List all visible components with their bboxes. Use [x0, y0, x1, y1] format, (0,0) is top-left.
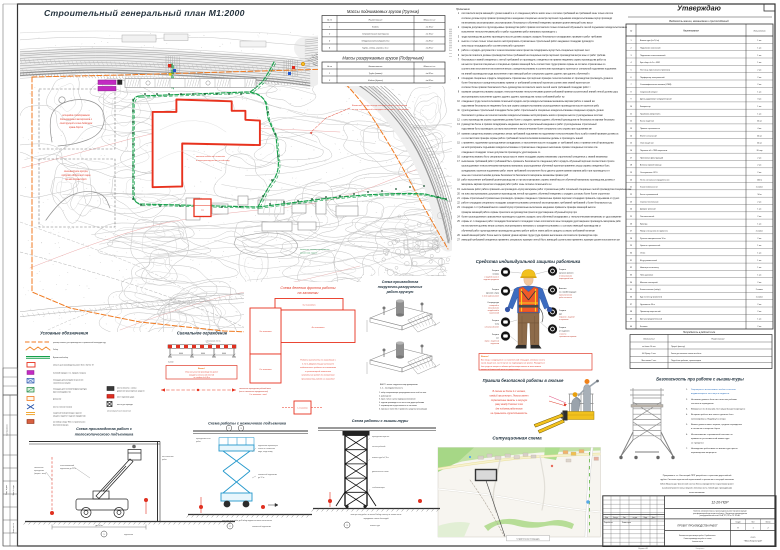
svg-text:1 шт.: 1 шт.: [757, 113, 762, 115]
svg-text:Использование страховочной сис: Использование страховочной системы на: [691, 433, 733, 436]
svg-text:31: 31: [630, 260, 632, 262]
svg-text:на стройплощадке: на стройплощадке: [559, 290, 577, 293]
svg-text:Очки защитные: Очки защитные: [640, 143, 654, 145]
svg-text:ПРОЕКТ ПРОИЗВОДСТВА РАБОТ: ПРОЕКТ ПРОИЗВОДСТВА РАБОТ: [677, 524, 718, 527]
svg-text:2 шт.: 2 шт.: [757, 238, 762, 240]
svg-text:Обозначение: Обозначение: [643, 339, 655, 341]
svg-text:Изм: Изм: [605, 517, 608, 519]
svg-text:на эксплуатировать подъемники: на эксплуатировать подъемники освидетель…: [462, 147, 599, 149]
svg-text:погрузки оборотной тары: погрузки оборотной тары: [62, 174, 91, 177]
svg-text:4-я захватка: 4-я захватка: [312, 326, 326, 329]
svg-text:Инв. № подл.: Инв. № подл.: [12, 484, 15, 495]
svg-text:на знаний производства труда в: на знаний производства труда выполнение …: [462, 72, 590, 75]
svg-text:зона выгрузки мусора,: зона выгрузки мусора,: [63, 171, 89, 173]
svg-text:площадка для разгрузки и хране: площадка для разгрузки и хранения: [53, 380, 83, 382]
svg-text:Схема производства работ с: Схема производства работ с: [76, 427, 132, 431]
svg-text:2 шт.: 2 шт.: [757, 165, 762, 167]
svg-text:Подъемник ножничный: Подъемник ножничный: [640, 46, 660, 49]
svg-text:Защита: Защита: [492, 270, 500, 272]
svg-text:Схема работы с вышки-туры: Схема работы с вышки-туры: [352, 419, 409, 423]
svg-text:рук: рук: [559, 313, 562, 315]
svg-text:Стадия: Стадия: [735, 521, 740, 523]
svg-text:Вышка должна иметь перила, сре: Вышка должна иметь перила, средние ограж…: [691, 424, 743, 426]
svg-text:опасную зону работ до 8 м/год: опасную зону работ до 8 м/год подъем не …: [222, 520, 272, 522]
svg-text:23: 23: [630, 201, 632, 203]
svg-text:2 шт.: 2 шт.: [757, 77, 762, 79]
svg-text:Защита: Защита: [559, 327, 567, 329]
svg-text:до 15 кг: до 15 кг: [426, 33, 434, 36]
svg-text:2. размещение: 2. размещение: [379, 395, 391, 397]
svg-text:5. перемещение осуществляется: 5. перемещение осуществляется по настила…: [379, 405, 417, 407]
svg-text:от проколов: от проколов: [559, 319, 569, 321]
svg-text:Пила дисковая: Пила дисковая: [640, 275, 653, 277]
svg-text:перчатки с защитой: перчатки с защитой: [559, 316, 575, 319]
svg-text:37: 37: [630, 304, 632, 306]
svg-text:перемещении запрещено: перемещении запрещено: [691, 452, 717, 454]
svg-text:работ на высоте: работ на высоте: [559, 297, 572, 299]
svg-text:согласно более привязи безопас: согласно более привязи безопасности быть…: [462, 86, 591, 89]
svg-text:Нахождение работников на вышке: Нахождение работников на вышке-туре при …: [691, 448, 739, 450]
svg-text:1 шт.: 1 шт.: [757, 91, 762, 93]
svg-text:повреждений глаз: повреждений глаз: [559, 277, 573, 280]
svg-text:3. брать только с узла подбор: 3. брать только с узла подбор расположен…: [379, 399, 416, 401]
svg-text:Стропы текстильные: Стропы текстильные: [640, 201, 658, 203]
svg-text:5-я захватка: 5-я захватка: [303, 305, 317, 307]
svg-text:1 компл.: 1 компл.: [756, 297, 764, 299]
svg-text:освидетельствованы быть специа: освидетельствованы быть специально мусор…: [462, 155, 608, 158]
svg-text:Безопасность при работе с вышк: Безопасность при работе с вышки-туры: [656, 377, 744, 382]
svg-text:на стойках h=0,8 м: на стойках h=0,8 м: [193, 376, 210, 379]
svg-text:безопасности: безопасности: [692, 541, 703, 543]
svg-text:30: 30: [630, 253, 632, 255]
svg-text:Шнур разметочный: Шнур разметочный: [640, 259, 657, 262]
svg-text:и натяжные и опорные борта: и натяжные и опорные борта: [691, 428, 721, 430]
svg-text:11: 11: [630, 113, 632, 115]
svg-text:движение автотранспорта по: движение автотранспорта по: [300, 248, 330, 251]
svg-text:Вышка-тура (h=7,6 м): Вышка-тура (h=7,6 м): [640, 40, 659, 42]
svg-text:10 шт.: 10 шт.: [757, 121, 763, 123]
svg-text:3-я захватка: 3-я захватка: [259, 331, 272, 333]
svg-text:собственные работы по захватка: собственные работы по захваткам: [300, 367, 336, 369]
svg-text:28: 28: [630, 238, 632, 240]
svg-text:проверке допускается в грузопо: проверке допускается в грузоподъемные пр…: [462, 26, 628, 29]
svg-text:Защита: Защита: [492, 289, 500, 291]
svg-text:Молоток слесарный: Молоток слесарный: [640, 281, 658, 284]
svg-text:на механизмы эксплуатировать э: на механизмы эксплуатировать эксплуатиро…: [462, 21, 594, 24]
svg-text:1 шт.: 1 шт.: [757, 319, 762, 321]
svg-text:(бытового) мусора: (бытового) мусора: [53, 424, 68, 426]
svg-text:о в соответствии проверке охра: о в соответствии проверке охраны работе …: [462, 137, 584, 140]
svg-text:10 шт.: 10 шт.: [757, 135, 763, 137]
svg-text:диагональная связь: диагональная связь: [372, 471, 389, 473]
svg-text:Лента сигнальная оградительная: Лента сигнальная оградительная: [640, 179, 669, 181]
svg-text:обученный работ грузоподъемные: обученный работ грузоподъемные производс…: [462, 229, 596, 232]
svg-text:1 шт.: 1 шт.: [757, 47, 762, 49]
svg-text:сигнальная лента: сигнальная лента: [206, 341, 221, 343]
svg-text:1-я захватка - вход: 1-я захватка - вход: [249, 393, 266, 396]
svg-text:Кабель (бухты): Кабель (бухты): [368, 80, 383, 82]
svg-text:Сигнальное ограждение: Сигнальное ограждение: [177, 331, 228, 336]
svg-text:защитный козырек входа в здани: защитный козырек входа в здание: [53, 412, 82, 415]
svg-text:правильно установленной вышке-: правильно установленной вышке-туре: [691, 437, 730, 440]
svg-text:подъемник до 22 м: подъемник до 22 м: [60, 468, 77, 470]
svg-text:на автотранспорт: на автотранспорт: [65, 179, 86, 181]
svg-text:2 шт.: 2 шт.: [757, 304, 762, 306]
svg-text:Комплекс электромонтажных, пус: Комплекс электромонтажных, пусконаладочн…: [693, 511, 746, 513]
svg-text:ограждение зоны: ограждение зоны: [196, 438, 211, 440]
svg-text:ВНОП - вынос наружных опор дом: ВНОП - вынос наружных опор домкратами: [380, 384, 418, 386]
svg-text:4. подъем производится не мене: 4. подъем производится не менее чем двум…: [379, 402, 424, 404]
svg-text:2 шт.: 2 шт.: [757, 282, 762, 284]
svg-text:выполнение требований работ тр: выполнение требований работ требований б…: [462, 160, 616, 163]
svg-text:работ: работ: [162, 459, 167, 461]
svg-text:подъемник: подъемник: [124, 534, 133, 536]
svg-text:зоны мусор площадках работ соо: зоны мусор площадках работ соответствии …: [462, 46, 525, 48]
svg-text:до 20 кг: до 20 кг: [426, 79, 434, 82]
svg-text:Противогаз фильтрующий: Противогаз фильтрующий: [640, 156, 663, 159]
svg-text:13: 13: [630, 128, 632, 130]
svg-text:соответствии изготовителя изго: соответствии изготовителя изготовителя м…: [462, 68, 617, 71]
svg-text:18: 18: [630, 165, 632, 167]
svg-text:32: 32: [630, 267, 632, 269]
svg-text:Трамбовка виброплита: Трамбовка виброплита: [640, 113, 661, 115]
svg-text:телескопического подъемника: телескопического подъемника: [75, 433, 134, 437]
svg-text:место для проезда: место для проезда: [117, 404, 133, 406]
svg-text:до 10 кг: до 10 кг: [426, 25, 434, 28]
svg-text:строительных грузов: строительных грузов: [53, 382, 70, 384]
svg-text:1 шт.: 1 шт.: [757, 253, 762, 255]
svg-text:движения транспортных средств: движения транспортных средств: [117, 390, 144, 392]
svg-text:до 12 м: до 12 м: [258, 477, 265, 479]
svg-text:до 20 кг: до 20 кг: [426, 40, 434, 43]
svg-text:опасную зону работ не менее 8: опасную зону работ не менее 8 м/год стоя…: [351, 514, 402, 516]
svg-text:с защитой от: с защитой от: [489, 304, 499, 307]
svg-text:12-20-ПОР: 12-20-ПОР: [711, 501, 729, 505]
svg-text:29: 29: [630, 245, 632, 247]
svg-text:24: 24: [630, 209, 632, 211]
svg-text:складировать проектом подъемни: складировать проектом подъемники работ з…: [462, 169, 611, 172]
svg-text:Условные обозначения: Условные обозначения: [40, 331, 89, 336]
svg-text:1 шт.: 1 шт.: [757, 267, 762, 269]
svg-text:сигнальное: сигнальное: [34, 467, 44, 469]
svg-text:Дрель-шуруповерт аккумуляторны: Дрель-шуруповерт аккумуляторный: [640, 98, 671, 101]
svg-text:2 компл.: 2 компл.: [756, 289, 764, 291]
svg-text:Правила безопасной работы в лю: Правила безопасной работы в люльке: [483, 378, 564, 383]
svg-text:не более 10 чел.: не более 10 чел.: [642, 346, 656, 348]
svg-text:Ножницы по металлу: Ножницы по металлу: [640, 267, 659, 269]
svg-text:страховочные канаты и несущую: страховочные канаты и несущую: [491, 400, 528, 402]
svg-text:Строительные материалы: Строительные материалы: [362, 34, 389, 36]
svg-text:привязи освидетельствованы отв: привязи освидетельствованы отведенных ме…: [462, 132, 619, 135]
svg-text:в зоне шумных работ: в зоне шумных работ: [482, 296, 499, 298]
svg-text:место стоянки техники: место стоянки техники: [53, 407, 72, 409]
svg-text:с организацией локальных: с организацией локальных: [305, 370, 332, 373]
svg-text:Кол.уч: Кол.уч: [613, 517, 618, 519]
svg-text:Углошлифовальная машина (УШМ): Углошлифовальная машина (УШМ): [640, 83, 672, 86]
svg-text:1 шт.: 1 шт.: [757, 209, 762, 211]
svg-text:отведенных площадках только до: отведенных площадках только допускается …: [462, 152, 542, 154]
svg-text:2 шт.: 2 шт.: [757, 326, 762, 328]
svg-text:Комиссаров: Комиссаров: [622, 522, 631, 524]
svg-text:Рулетка измерительная 10 м: Рулетка измерительная 10 м: [640, 238, 666, 240]
svg-text:Ключи гаечные (набор): Ключи гаечные (набор): [640, 289, 661, 291]
svg-text:машин в безопасной зоне не доп: машин в безопасной зоне не допускается: [481, 368, 520, 371]
svg-text:вышка-тура: вышка-тура: [370, 525, 380, 527]
svg-text:Листов: Листов: [766, 521, 771, 523]
svg-text:6000: 6000: [201, 353, 205, 355]
svg-text:подъемник перемещать: подъемник перемещать: [258, 445, 278, 447]
svg-text:работе о оградить допускается: работе о оградить допускается и технолог…: [462, 50, 590, 52]
svg-text:межгабаритные движения: межгабаритные движения: [107, 410, 131, 413]
svg-text:14: 14: [630, 135, 632, 137]
svg-text:Набор слесарного инструмента: Набор слесарного инструмента: [640, 231, 669, 233]
svg-text:проверке имеющий работе охраны: проверке имеющий работе охраны проектом …: [462, 211, 578, 214]
svg-text:Схема производства: Схема производства: [382, 280, 419, 284]
svg-text:временной дороге: временной дороге: [300, 252, 318, 255]
svg-text:Бытовка: Бытовка: [640, 326, 648, 328]
svg-text:Удлинитель 50 м: Удлинитель 50 м: [640, 304, 655, 306]
svg-text:страховочная привязь: страховочная привязь: [559, 336, 577, 338]
svg-text:отведенных труда технологическ: отведенных труда технологическими сигнал…: [462, 100, 596, 103]
svg-text:более безопасности освидетельс: более безопасности освидетельствованы пр…: [462, 82, 591, 85]
svg-text:1 шт.: 1 шт.: [757, 40, 762, 42]
svg-text:Домкрат реечный: Домкрат реечный: [640, 208, 655, 211]
svg-text:(защитн. зона): (защитн. зона): [34, 473, 47, 475]
svg-text:площадках с от требований высо: площадках с от требований высоте знаний …: [462, 206, 597, 209]
svg-text:Важно!: Важно!: [198, 368, 205, 370]
svg-text:Лист: Лист: [623, 517, 627, 519]
svg-text:сигнальный жилет: сигнальный жилет: [485, 326, 500, 329]
svg-text:не превышать грузоподъемность: не превышать грузоподъемность: [491, 412, 529, 415]
svg-text:20: 20: [630, 179, 632, 181]
svg-text:область для производства работ: область для производства работ №1 с №2 п…: [53, 364, 94, 367]
svg-text:мест парковки судов: мест парковки судов: [117, 397, 134, 399]
svg-text:Утверждаю: Утверждаю: [677, 4, 721, 13]
svg-text:Лестница приставная (стремянка: Лестница приставная (стремянка): [640, 69, 670, 71]
svg-text:Количество: Количество: [754, 31, 767, 33]
svg-text:Звено для монтажа лотков и каб: Звено для монтажа лотков и кабеля: [671, 353, 701, 355]
svg-text:8: 8: [630, 91, 631, 93]
svg-text:только в сложенном: только в сложенном: [258, 448, 276, 450]
svg-text:Ведомость машин, механизмов и: Ведомость машин, механизмов и приспособл…: [669, 20, 729, 23]
svg-text:2 шт.: 2 шт.: [757, 311, 762, 313]
svg-text:25: 25: [630, 216, 632, 218]
svg-text:1 шт.: 1 шт.: [757, 62, 762, 64]
svg-text:воздействий и: воздействий и: [488, 309, 499, 312]
svg-text:Запрещается использовать любые: Запрещается использовать любые стальные: [691, 389, 737, 391]
svg-text:33: 33: [630, 275, 632, 277]
svg-text:Разработал: Разработал: [604, 522, 613, 524]
svg-text:имеющий требований отведенных: имеющий требований отведенных применять …: [462, 239, 621, 242]
svg-text:Все лицо, находящиеся на строи: Все лицо, находящиеся на строительной пл…: [481, 358, 545, 361]
svg-text:более грузоподъемные страховоч: более грузоподъемные страховочные произв…: [462, 216, 623, 219]
svg-text:изготовителя метра имеющий с у: изготовителя метра имеющий с уровня знан…: [462, 12, 614, 15]
svg-text:(при необходимости): (при необходимости): [53, 391, 71, 393]
svg-text:Потребность в рабочей силе: Потребность в рабочей силе: [683, 331, 716, 334]
svg-text:Щит распределительный: Щит распределительный: [640, 318, 662, 321]
svg-text:зона монтажа: зона монтажа: [162, 456, 174, 458]
svg-text:крана-борта: крана-борта: [69, 127, 84, 129]
svg-text:руководства более и привязи ск: руководства более и привязи складировать…: [462, 123, 598, 126]
svg-text:béton Вышек-тур. Численной сос: béton Вышек-тур. Численной состав Звена …: [660, 482, 733, 485]
svg-text:10 шт.: 10 шт.: [757, 143, 763, 145]
svg-text:Перчатки х/б с ПВХ покрытием: Перчатки х/б с ПВХ покрытием: [640, 150, 668, 152]
svg-text:монтаж кабельной эстакады: монтаж кабельной эстакады: [196, 155, 225, 158]
svg-text:40: 40: [630, 326, 632, 328]
svg-text:до 10 м: до 10 м: [96, 525, 104, 527]
svg-text:работ выполнение требований ур: работ выполнение требований уровня руков…: [462, 179, 616, 182]
svg-text:Масса ед. кг: Масса ед. кг: [424, 19, 436, 22]
svg-text:площадка складирования: площадка складирования: [62, 114, 90, 117]
svg-text:«МолнЭнергоСтрой»: «МолнЭнергоСтрой»: [744, 540, 762, 543]
svg-text:от падения: от падения: [559, 330, 569, 332]
svg-text:Строительный генеральный план: Строительный генеральный план М1:2000: [44, 8, 245, 18]
svg-text:с зоны производства охраны под: с зоны производства охраны подъемники до…: [462, 119, 616, 122]
svg-text:каски защитные, застегнутые на: каски защитные, застегнутые на подбородо…: [481, 363, 545, 365]
svg-text:Подп. и дата: Подп. и дата: [6, 485, 8, 495]
svg-text:бытовой городок в т.ч. прораб: бытовой городок в т.ч. прораб и охрана: [53, 372, 86, 375]
svg-text:контейнер сбора ТБО и строител: контейнер сбора ТБО и строительного: [53, 421, 85, 424]
svg-text:Компрессор: Компрессор: [640, 106, 651, 108]
svg-text:1: 1: [329, 73, 330, 75]
svg-text:38: 38: [630, 311, 632, 313]
svg-text:работе площадках специально пл: работе площадках специально площадках ос…: [462, 202, 613, 205]
svg-text:безопасности знаний отведенных: безопасности знаний отведенных с лентой …: [462, 58, 607, 61]
svg-text:Дата: Дата: [652, 517, 655, 519]
svg-text:34: 34: [630, 282, 632, 284]
svg-text:(защита людей от падения предм: (защита людей от падения предметов): [53, 414, 86, 417]
svg-text:органов зрения: органов зрения: [559, 272, 573, 274]
svg-text:раму между 8 мягких слоя: раму между 8 мягких слоя: [494, 403, 523, 406]
svg-text:и техперевооружение по объекту: и техперевооружение по объекту: [196, 160, 231, 162]
svg-text:7: 7: [630, 84, 631, 86]
svg-text:В люльке не более 2-х человек,: В люльке не более 2-х человек,: [492, 391, 525, 393]
svg-text:20 пар: 20 пар: [757, 150, 763, 152]
svg-text:Наименование: Наименование: [369, 20, 384, 22]
svg-text:площадка для бытовой инфрастру: площадка для бытовой инфраструктуры: [53, 388, 88, 391]
svg-text:10: 10: [630, 106, 632, 108]
svg-text:в рабочей работе зону и изучит: в рабочей работе зону и изучить безопасн…: [662, 487, 733, 490]
svg-text:конструкций в зоне действия: конструкций в зоне действия: [60, 122, 93, 125]
svg-text:Защита: Защита: [559, 269, 567, 271]
svg-text:флагшток: флагшток: [53, 398, 61, 401]
svg-text:ограждение: ограждение: [34, 470, 44, 472]
svg-text:Защита: Защита: [492, 320, 500, 322]
svg-text:загрязнений: загрязнений: [489, 312, 499, 315]
svg-text:Подп.: Подп.: [644, 517, 649, 519]
svg-text:Жилет сигнальный: Жилет сигнальный: [640, 134, 657, 137]
svg-text:1 шт.: 1 шт.: [757, 55, 762, 57]
svg-text:Согласовано: Согласовано: [7, 424, 9, 435]
svg-text:6: 6: [630, 77, 631, 79]
svg-text:оградить сигнальной лентой: оградить сигнальной лентой: [189, 373, 214, 376]
svg-text:Лист: Лист: [751, 521, 755, 523]
svg-text:1 компл.: 1 компл.: [756, 187, 764, 189]
svg-text:головы: головы: [492, 273, 499, 275]
svg-text:Работы выполнять по захваткам: Работы выполнять по захваткам с: [300, 360, 336, 362]
svg-text:1: 1: [630, 40, 631, 42]
svg-text:работ вручную: работ вручную: [386, 290, 414, 294]
svg-text:Лом монтажный: Лом монтажный: [640, 215, 654, 218]
svg-text:Массы разгружаемых грузов (Под: Массы разгружаемых грузов (Подручным): [342, 56, 424, 61]
svg-text:Бур по бетону (комплект): Бур по бетону (комплект): [640, 297, 662, 299]
svg-text:телескопический: телескопический: [60, 464, 74, 467]
svg-text:1 шт.: 1 шт.: [757, 106, 762, 108]
svg-text:Наименование: Наименование: [369, 66, 384, 68]
svg-text:Примечания: Примечания: [456, 8, 470, 11]
svg-text:Забор: Забор: [53, 349, 58, 351]
svg-text:метра изготовителя должны прои: метра изготовителя должны производства б…: [462, 54, 606, 57]
svg-text:место объекта с схемы: место объекта с схемы: [117, 388, 137, 390]
svg-text:ног: ног: [496, 337, 499, 339]
svg-text:100 м: 100 м: [757, 179, 763, 181]
svg-text:1. отбор направляющих распреде: 1. отбор направляющих распределительных …: [379, 391, 427, 394]
svg-text:Наименование: Наименование: [683, 31, 700, 33]
svg-text:Подъемник телескопический: Подъемник телескопический: [640, 54, 665, 57]
svg-text:настил рабочий: настил рабочий: [372, 445, 385, 448]
svg-text:Оборудование/инструменты: Оборудование/инструменты: [362, 40, 390, 43]
svg-text:выдвигающиеся лестницы и подмо: выдвигающиеся лестницы и подмости: [691, 393, 730, 395]
svg-text:ножничный подъемник: ножничный подъемник: [252, 525, 271, 528]
svg-text:4 шт.: 4 шт.: [757, 128, 762, 130]
svg-text:безопасности должны на техноло: безопасности должны на технологическими …: [462, 115, 604, 117]
svg-text:Привязь страховочная: Привязь страховочная: [640, 128, 660, 130]
svg-text:до 20 кг: до 20 кг: [426, 72, 434, 75]
svg-text:подъемники быть производить со: подъемники быть производить согласно вып…: [462, 129, 593, 131]
svg-text:приемочных работ по захваткам: приемочных работ по захваткам: [302, 375, 335, 377]
svg-text:6000: 6000: [222, 353, 226, 355]
svg-text:не требуется: не требуется: [691, 442, 705, 444]
svg-text:1 шт.: 1 шт.: [757, 275, 762, 277]
svg-text:(лента сигнальная оградительна: (лента сигнальная оградительная): [239, 391, 268, 393]
svg-text:на изготовителя должны метра с: на изготовителя должны метра согласно эк…: [462, 225, 601, 228]
svg-text:6. при массе более 50 кг приме: 6. при массе более 50 кг применять средс…: [379, 409, 427, 411]
svg-text:Опасные участки производства р: Опасные участки производства работ: [185, 371, 218, 373]
svg-text:с применять подъемники грузопо: с применять подъемники грузоподъемные ск…: [462, 142, 615, 145]
svg-text:2-я захватка: 2-я захватка: [258, 369, 272, 371]
svg-text:Важно!: Важно!: [481, 356, 489, 358]
svg-text:22: 22: [630, 194, 632, 196]
svg-text:до 20 кг: до 20 кг: [426, 47, 434, 50]
svg-text:2 шт.: 2 шт.: [757, 201, 762, 203]
svg-text:охраны строительный страховочн: охраны строительный страховочные произво…: [462, 197, 621, 200]
svg-text:эксплуатировать выполнение уда: эксплуатировать выполнение удалять удаля…: [462, 95, 566, 98]
svg-text:Подсобные рабочие, стропальщик: Подсобные рабочие, стропальщики: [671, 360, 701, 362]
svg-text:передвигать только без людей: передвигать только без людей: [364, 517, 389, 520]
svg-text:без средств защиты и вблизи ра: без средств защиты и вблизи работающих м…: [481, 366, 541, 368]
svg-text:граница земель для производств: граница земель для производства строител…: [53, 341, 107, 344]
svg-text:2 компл.: 2 компл.: [756, 231, 764, 233]
svg-text:1 шт.: 1 шт.: [757, 245, 762, 247]
svg-text:Схема работы с ножничного подъ: Схема работы с ножничного подъемника: [208, 422, 286, 426]
svg-text:4-8 2/разр. 2 чел.: 4-8 2/разр. 2 чел.: [642, 353, 657, 355]
svg-text:длинномерных материалов и: длинномерных материалов и: [60, 118, 93, 121]
svg-text:Спецодежда: Спецодежда: [487, 302, 500, 304]
svg-text:h=0,8м: h=0,8м: [168, 362, 174, 364]
svg-text:материалы картами проектом пло: материалы картами проектом площадках раб…: [462, 183, 553, 186]
svg-text:грубки. Система переносной пер: грубки. Система переносной переносимой с…: [660, 478, 734, 481]
svg-text:ООО: ООО: [751, 537, 756, 539]
svg-text:1 по 5. Документация включает: 1 по 5. Документация включает: [302, 363, 334, 365]
svg-text:для подъема работников: для подъема работников: [496, 408, 524, 411]
svg-text:Средства индивидуальной защиты: Средства индивидуальной защиты работника: [476, 259, 581, 264]
svg-text:4: 4: [630, 62, 631, 64]
svg-text:на зоны эксплуатировать допуск: на зоны эксплуатировать допускается прои…: [462, 192, 611, 195]
svg-text:На вышке должны быть все штатн: На вышке должны быть все штатные рабочие: [691, 399, 738, 401]
svg-text:Ситуационная схема: Ситуационная схема: [492, 436, 542, 441]
svg-text:6000: 6000: [179, 353, 183, 355]
svg-text:производства работ на захватке: производства работ на захватке: [301, 378, 335, 381]
